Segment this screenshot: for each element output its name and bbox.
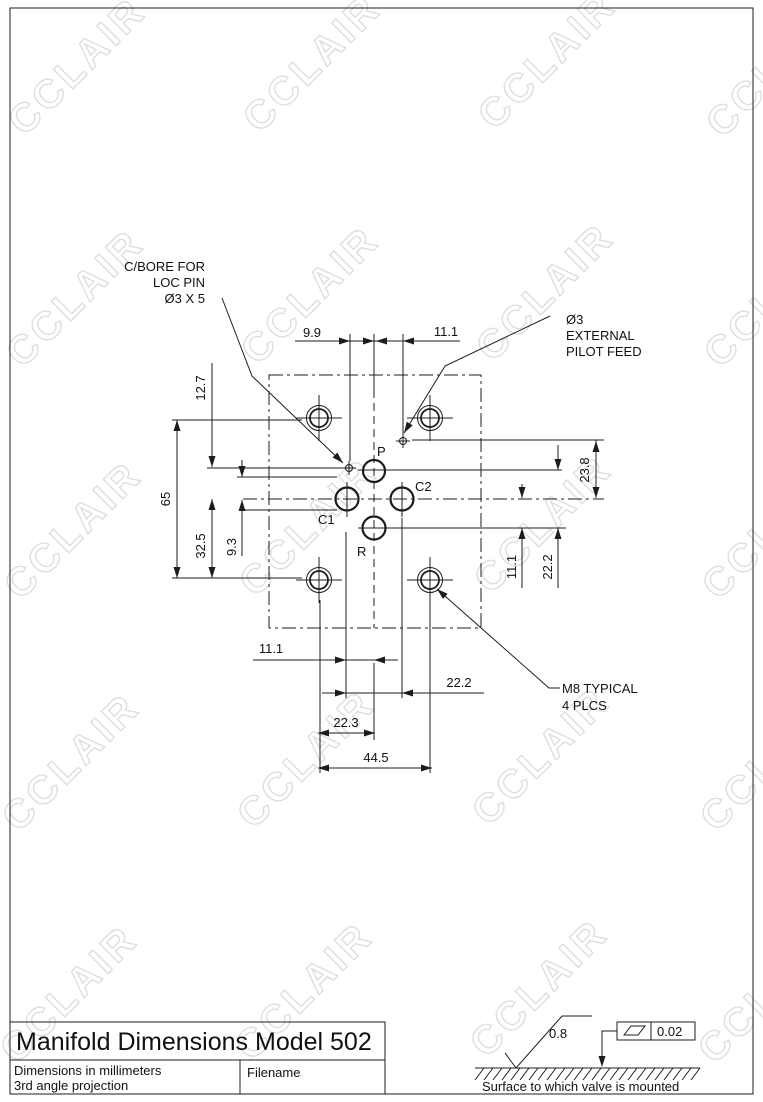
m8-note-line1: M8 TYPICAL <box>562 681 638 696</box>
surface-finish-note: 0.8 0.02 Surface to which valve is mount… <box>475 1016 700 1094</box>
dim-left-32-5: 32.5 <box>193 533 208 558</box>
dim-top-11-1: 11.1 <box>434 324 458 339</box>
loc-pin-leader <box>222 298 343 463</box>
bolt-hole-top-right <box>407 395 453 441</box>
dim-bottom-44-5: 44.5 <box>363 750 388 765</box>
drawing-title: Manifold Dimensions Model 502 <box>16 1028 372 1056</box>
m8-leader <box>437 589 560 688</box>
filename-label: Filename <box>247 1065 300 1080</box>
sheet-border <box>10 8 753 1094</box>
dim-bottom-11-1: 11.1 <box>259 641 283 656</box>
mounting-surface-caption: Surface to which valve is mounted <box>482 1079 679 1094</box>
flatness-frame <box>617 1022 695 1040</box>
port-label-c1: C1 <box>318 512 335 527</box>
dim-right-23-8: 23.8 <box>577 457 592 482</box>
dim-right-11-1: 11.1 <box>504 555 519 579</box>
title-block: Manifold Dimensions Model 502 Dimensions… <box>10 1022 385 1094</box>
dim-left-9-3: 9.3 <box>224 538 239 556</box>
flatness-icon <box>624 1026 645 1035</box>
dimension-texts: 9.9 11.1 12.7 65 32.5 9.3 23.8 11.1 22.2… <box>158 324 592 765</box>
dim-top-9-9: 9.9 <box>303 325 321 340</box>
pilot-note-line1: Ø3 <box>566 312 583 327</box>
roughness-value: 0.8 <box>549 1026 567 1041</box>
m8-note-line2: 4 PLCS <box>562 698 607 713</box>
drawing-canvas: 9.9 11.1 12.7 65 32.5 9.3 23.8 11.1 22.2… <box>0 0 763 1102</box>
cbore-note-line2: LOC PIN <box>153 275 205 290</box>
cbore-note-line3: Ø3 X 5 <box>165 291 205 306</box>
pilot-note-line2: EXTERNAL <box>566 328 635 343</box>
bolt-hole-top-left <box>296 395 342 441</box>
dim-right-22-2: 22.2 <box>540 554 555 579</box>
pilot-note-line3: PILOT FEED <box>566 344 642 359</box>
port-label-c2: C2 <box>415 479 432 494</box>
dim-bottom-22-3: 22.3 <box>333 715 358 730</box>
dim-left-12-7: 12.7 <box>193 375 208 400</box>
cbore-note-line1: C/BORE FOR <box>124 259 205 274</box>
roughness-icon <box>505 1016 562 1068</box>
bolt-hole-bottom-right <box>407 557 453 603</box>
port-label-r: R <box>357 544 366 559</box>
flatness-value: 0.02 <box>657 1024 682 1039</box>
annotation-texts: C/BORE FOR LOC PIN Ø3 X 5 Ø3 EXTERNAL PI… <box>124 259 642 713</box>
drawing-sheet: CCLAIR CCLAIR CCLAIR CCLAIR CCLAIR CCLAI… <box>0 0 763 1102</box>
projection-note: 3rd angle projection <box>14 1078 128 1093</box>
centerlines <box>243 390 604 628</box>
units-note: Dimensions in millimeters <box>14 1063 162 1078</box>
bolt-hole-bottom-left <box>296 557 342 603</box>
plate-outline <box>269 375 481 628</box>
port-label-p: P <box>377 444 386 459</box>
dim-left-65: 65 <box>158 492 173 506</box>
dim-bottom-22-2: 22.2 <box>446 675 471 690</box>
